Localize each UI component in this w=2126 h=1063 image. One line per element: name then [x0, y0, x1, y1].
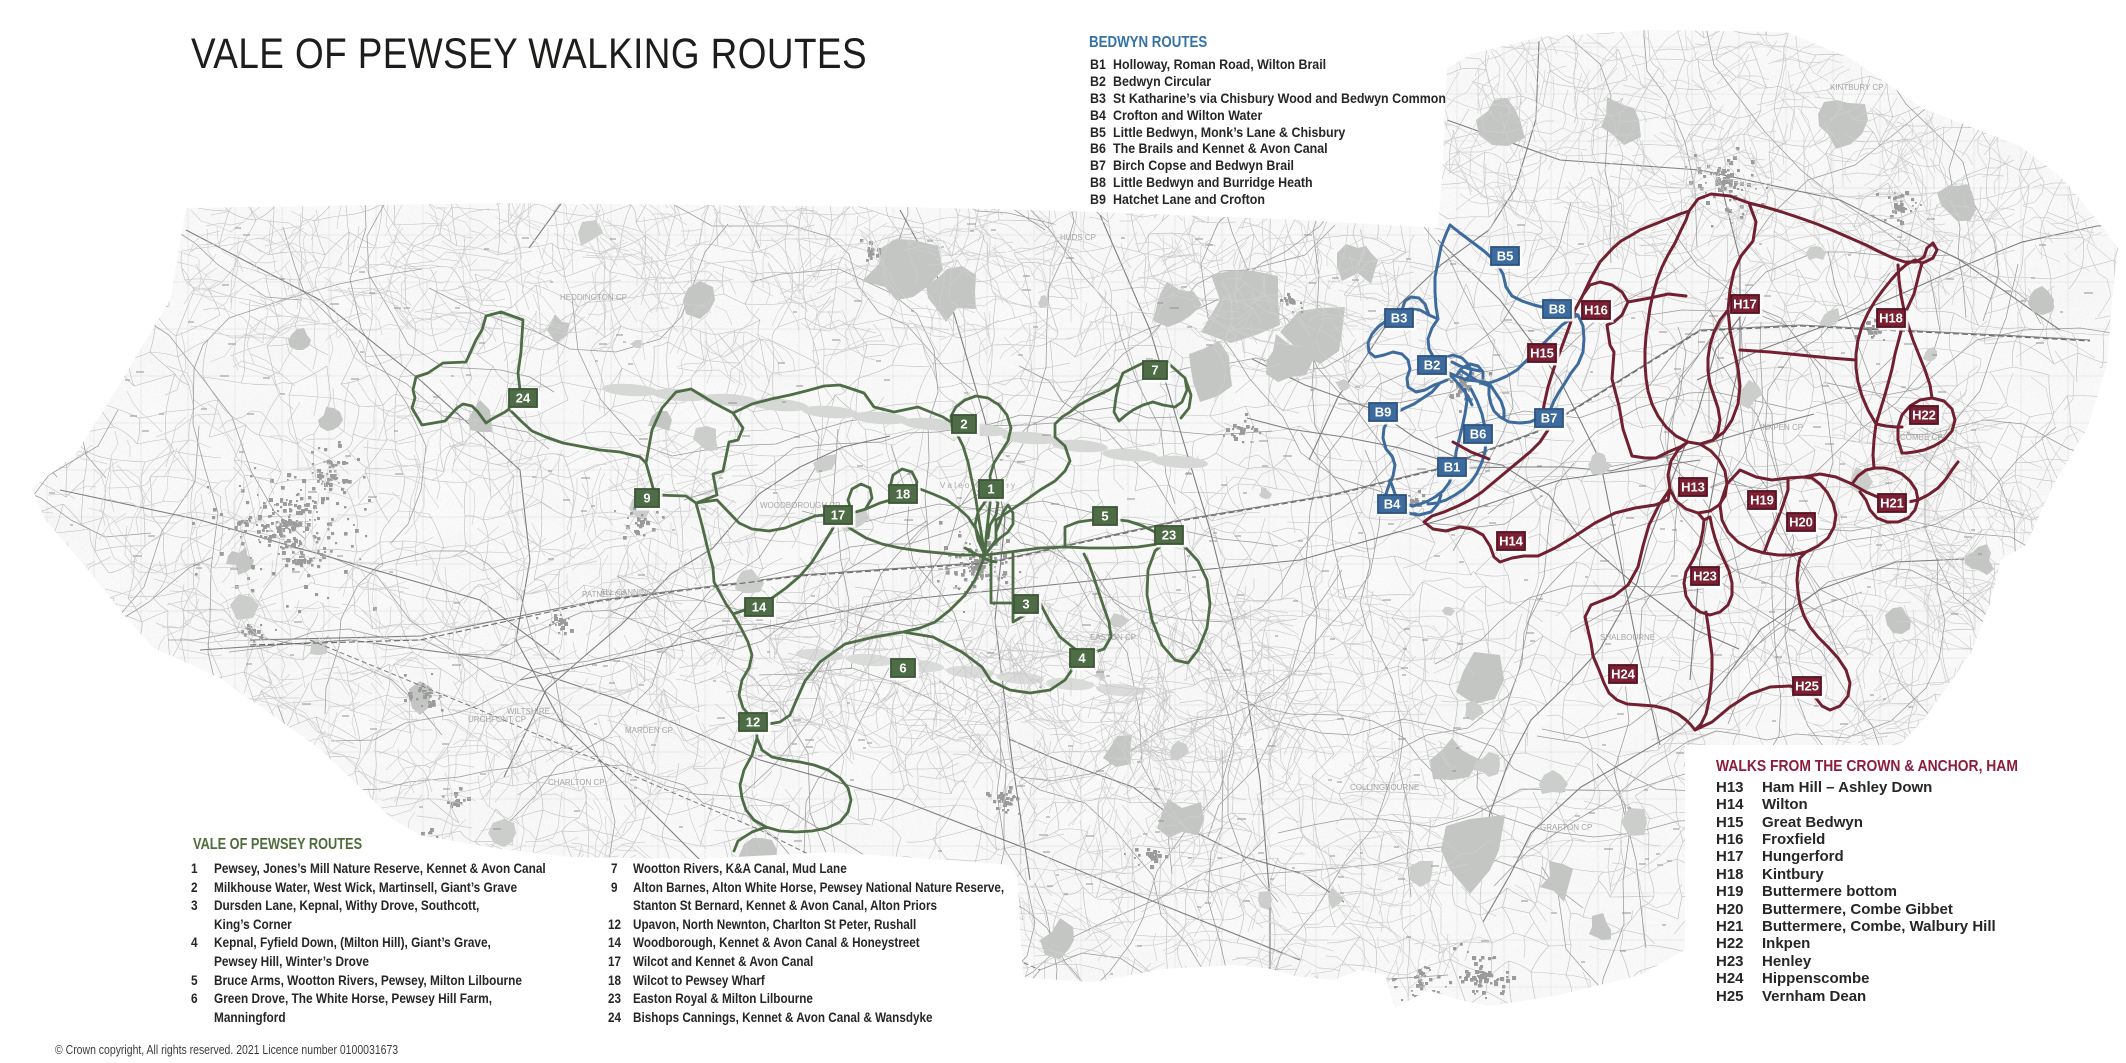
svg-text:H22: H22: [1912, 408, 1936, 423]
svg-text:COMBE CP: COMBE CP: [1900, 433, 1943, 442]
svg-text:B5: B5: [1497, 249, 1514, 264]
svg-text:EASTON CP: EASTON CP: [1090, 633, 1136, 642]
svg-text:KINTBURY CP: KINTBURY CP: [1830, 83, 1884, 92]
svg-text:B2: B2: [1424, 358, 1441, 373]
svg-text:7: 7: [1151, 363, 1158, 378]
svg-text:B7: B7: [1541, 411, 1558, 426]
svg-text:B9: B9: [1375, 405, 1392, 420]
svg-text:SHALBOURNE: SHALBOURNE: [1600, 633, 1655, 642]
svg-text:GRAFTON CP: GRAFTON CP: [1540, 823, 1592, 832]
svg-text:H16: H16: [1584, 303, 1608, 318]
svg-text:H15: H15: [1530, 346, 1554, 361]
svg-text:B4: B4: [1384, 497, 1401, 512]
svg-text:4: 4: [1078, 651, 1086, 666]
svg-text:PATNEY CP: PATNEY CP: [582, 590, 626, 599]
svg-text:INKPEN CP: INKPEN CP: [1760, 423, 1803, 432]
svg-text:H17: H17: [1733, 297, 1757, 312]
svg-text:HEDDINGTON CP: HEDDINGTON CP: [560, 293, 627, 302]
svg-text:6: 6: [899, 661, 906, 676]
svg-text:3: 3: [1022, 597, 1029, 612]
svg-text:H20: H20: [1789, 515, 1813, 530]
svg-text:H19: H19: [1750, 493, 1774, 508]
svg-text:24: 24: [516, 391, 531, 406]
svg-text:H14: H14: [1499, 534, 1524, 549]
svg-text:H13: H13: [1681, 480, 1705, 495]
svg-text:CHARLTON CP: CHARLTON CP: [548, 778, 605, 787]
svg-text:H23: H23: [1693, 569, 1717, 584]
svg-text:B1: B1: [1444, 460, 1461, 475]
svg-text:B6: B6: [1470, 427, 1487, 442]
svg-text:1: 1: [987, 482, 994, 497]
svg-text:COLLINGBOURNE: COLLINGBOURNE: [1350, 783, 1419, 792]
svg-text:URCHFONT CP: URCHFONT CP: [468, 715, 526, 724]
svg-text:MARDEN CP: MARDEN CP: [625, 726, 673, 735]
svg-text:B3: B3: [1391, 311, 1408, 326]
svg-text:DEVIZES: DEVIZES: [275, 520, 309, 529]
svg-text:23: 23: [1162, 528, 1176, 543]
svg-text:H18: H18: [1879, 311, 1903, 326]
svg-text:17: 17: [831, 508, 845, 523]
svg-text:12: 12: [746, 715, 760, 730]
svg-text:9: 9: [643, 491, 650, 506]
svg-text:14: 14: [752, 600, 767, 615]
svg-text:H25: H25: [1795, 679, 1819, 694]
svg-text:HUDS CP: HUDS CP: [1060, 233, 1096, 242]
svg-text:5: 5: [1101, 509, 1108, 524]
svg-text:18: 18: [896, 487, 910, 502]
svg-text:2: 2: [960, 417, 967, 432]
svg-text:B8: B8: [1549, 302, 1566, 317]
svg-text:H21: H21: [1880, 496, 1904, 511]
svg-text:H24: H24: [1611, 667, 1636, 682]
